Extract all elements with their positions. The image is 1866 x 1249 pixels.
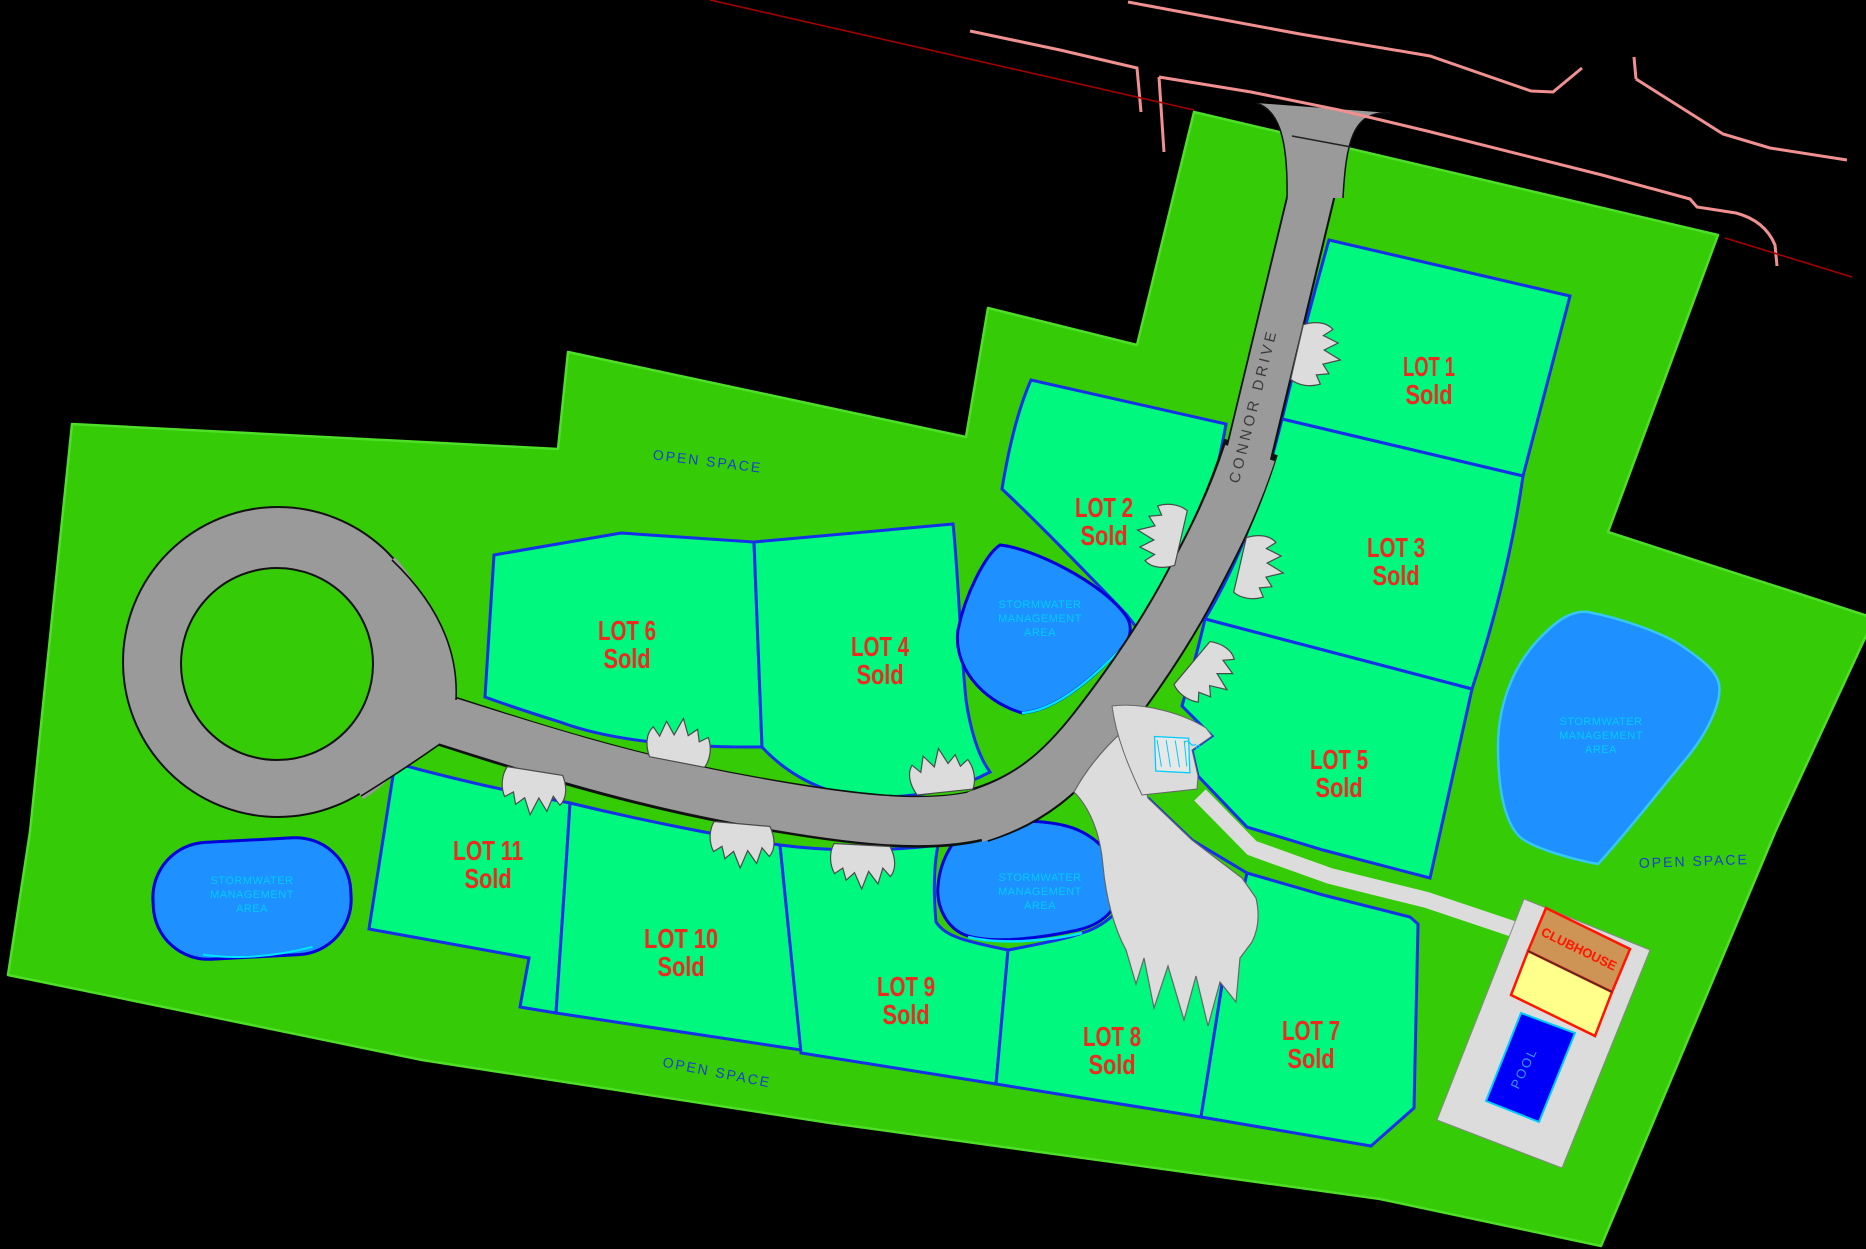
svg-text:LOT 7: LOT 7 — [1282, 1015, 1340, 1046]
svg-text:Sold: Sold — [604, 643, 651, 674]
svg-text:STORMWATER: STORMWATER — [998, 599, 1081, 611]
svg-text:Sold: Sold — [1081, 520, 1128, 551]
svg-text:LOT 6: LOT 6 — [598, 615, 656, 646]
svg-text:LOT 10: LOT 10 — [644, 923, 718, 954]
svg-text:LOT 5: LOT 5 — [1310, 744, 1368, 775]
svg-text:LOT 2: LOT 2 — [1075, 492, 1133, 523]
svg-text:LOT 11: LOT 11 — [453, 835, 523, 866]
svg-text:Sold: Sold — [1373, 560, 1420, 591]
svg-text:STORMWATER: STORMWATER — [998, 872, 1081, 884]
svg-text:LOT 3: LOT 3 — [1367, 532, 1425, 563]
svg-text:AREA: AREA — [236, 903, 268, 915]
svg-text:Sold: Sold — [1288, 1043, 1335, 1074]
svg-text:LOT 1: LOT 1 — [1403, 351, 1455, 382]
svg-text:Sold: Sold — [1089, 1049, 1136, 1080]
svg-text:LOT 9: LOT 9 — [877, 971, 935, 1002]
svg-text:Sold: Sold — [465, 863, 512, 894]
svg-text:Sold: Sold — [1406, 379, 1453, 410]
svg-text:Sold: Sold — [857, 659, 904, 690]
svg-text:AREA: AREA — [1024, 900, 1056, 912]
svg-text:AREA: AREA — [1585, 744, 1617, 756]
svg-text:AREA: AREA — [1024, 627, 1056, 639]
svg-text:Sold: Sold — [1316, 772, 1363, 803]
svg-text:STORMWATER: STORMWATER — [1559, 716, 1642, 728]
svg-text:MANAGEMENT: MANAGEMENT — [1559, 730, 1643, 742]
svg-text:LOT 8: LOT 8 — [1083, 1021, 1141, 1052]
svg-text:STORMWATER: STORMWATER — [210, 875, 293, 887]
svg-text:Sold: Sold — [883, 999, 930, 1030]
svg-text:MANAGEMENT: MANAGEMENT — [998, 886, 1082, 898]
svg-text:Sold: Sold — [658, 951, 705, 982]
svg-text:LOT 4: LOT 4 — [851, 631, 909, 662]
svg-text:MANAGEMENT: MANAGEMENT — [210, 889, 294, 901]
svg-text:MANAGEMENT: MANAGEMENT — [998, 613, 1082, 625]
